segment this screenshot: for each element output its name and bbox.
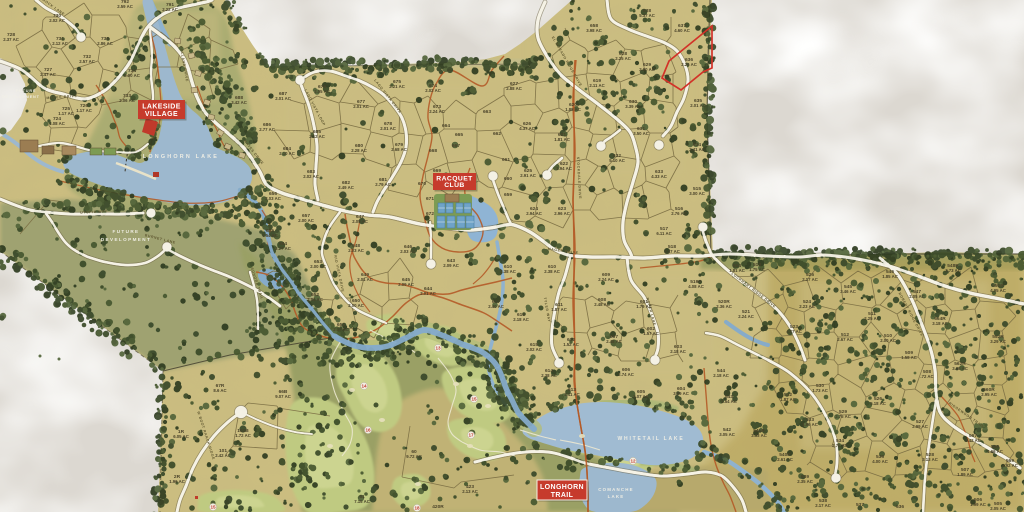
svg-text:2.01 AC: 2.01 AC bbox=[690, 103, 706, 108]
svg-text:2.40 AC: 2.40 AC bbox=[488, 304, 504, 309]
svg-text:536: 536 bbox=[896, 504, 904, 510]
svg-text:2.24 AC: 2.24 AC bbox=[598, 277, 614, 282]
svg-text:9.07 AC: 9.07 AC bbox=[275, 394, 291, 399]
svg-text:.72 AC: .72 AC bbox=[920, 374, 933, 379]
svg-text:1.54 AC: 1.54 AC bbox=[721, 399, 737, 404]
svg-text:3.33 AC: 3.33 AC bbox=[751, 433, 767, 438]
svg-text:LAKESIDE: LAKESIDE bbox=[142, 103, 181, 110]
svg-text:2.49 AC: 2.49 AC bbox=[338, 185, 354, 190]
svg-text:3.42 AC: 3.42 AC bbox=[231, 100, 247, 105]
svg-text:1.89 AC: 1.89 AC bbox=[957, 472, 973, 477]
svg-text:2.59 AC: 2.59 AC bbox=[117, 4, 133, 9]
svg-text:4.27 AC: 4.27 AC bbox=[786, 329, 802, 334]
svg-text:1.99 AC: 1.99 AC bbox=[970, 502, 986, 507]
svg-text:2.23 AC: 2.23 AC bbox=[799, 304, 815, 309]
svg-text:2.61 AC: 2.61 AC bbox=[777, 457, 793, 462]
svg-text:2.01 AC: 2.01 AC bbox=[420, 291, 436, 296]
svg-text:2.01 AC: 2.01 AC bbox=[353, 104, 369, 109]
svg-text:12: 12 bbox=[630, 459, 636, 464]
svg-text:664: 664 bbox=[442, 123, 450, 129]
svg-text:2.00 AC: 2.00 AC bbox=[124, 73, 140, 78]
svg-text:1.73 AC: 1.73 AC bbox=[812, 388, 828, 393]
svg-text:FUTURE: FUTURE bbox=[112, 229, 139, 234]
svg-text:DEVELOPMENT: DEVELOPMENT bbox=[101, 237, 151, 242]
svg-text:2.94 AC: 2.94 AC bbox=[526, 211, 542, 216]
svg-text:668: 668 bbox=[429, 148, 437, 154]
svg-text:3.39 AC: 3.39 AC bbox=[625, 104, 641, 109]
svg-text:2.02 AC: 2.02 AC bbox=[303, 174, 319, 179]
svg-text:2.37 AC: 2.37 AC bbox=[3, 37, 19, 42]
svg-text:1.99 AC: 1.99 AC bbox=[802, 422, 818, 427]
svg-text:8.6 AC: 8.6 AC bbox=[213, 388, 226, 393]
svg-text:2.75 AC: 2.75 AC bbox=[835, 414, 851, 419]
svg-text:2.79 AC: 2.79 AC bbox=[832, 443, 848, 448]
svg-text:2.36 AC: 2.36 AC bbox=[716, 304, 732, 309]
svg-text:2.67 AC: 2.67 AC bbox=[837, 337, 853, 342]
svg-text:2.09 AC: 2.09 AC bbox=[398, 282, 414, 287]
svg-text:5.37 AC: 5.37 AC bbox=[639, 13, 655, 18]
svg-text:4.95 AC: 4.95 AC bbox=[990, 288, 1006, 293]
svg-text:2.17 AC: 2.17 AC bbox=[815, 503, 831, 508]
svg-text:1.94 AC: 1.94 AC bbox=[556, 166, 572, 171]
svg-text:2.05 AC: 2.05 AC bbox=[314, 89, 330, 94]
svg-text:2.01 AC: 2.01 AC bbox=[307, 297, 323, 302]
svg-text:4.37 AC: 4.37 AC bbox=[519, 126, 535, 131]
svg-text:5.10 AC: 5.10 AC bbox=[609, 158, 625, 163]
svg-text:6.11 AC: 6.11 AC bbox=[656, 231, 671, 236]
svg-text:TRAIL: TRAIL bbox=[551, 492, 574, 499]
svg-text:WHITETAIL LAKE: WHITETAIL LAKE bbox=[618, 436, 685, 442]
svg-text:667: 667 bbox=[452, 143, 460, 149]
svg-text:1.85 AC: 1.85 AC bbox=[882, 274, 898, 279]
svg-text:2.88 AC: 2.88 AC bbox=[506, 86, 522, 91]
svg-text:2.86 AC: 2.86 AC bbox=[97, 41, 113, 46]
svg-text:1.81 AC: 1.81 AC bbox=[729, 268, 745, 273]
svg-text:2.17 AC: 2.17 AC bbox=[333, 327, 349, 332]
svg-text:DEVELOPMENT: DEVELOPMENT bbox=[2, 95, 40, 99]
svg-text:2.01 AC: 2.01 AC bbox=[357, 277, 373, 282]
svg-text:2.11 AC: 2.11 AC bbox=[564, 392, 579, 397]
svg-text:2.47 AC: 2.47 AC bbox=[40, 72, 56, 77]
svg-text:2.41 AC: 2.41 AC bbox=[689, 147, 705, 152]
svg-text:659: 659 bbox=[504, 192, 512, 198]
svg-text:2.68 AC: 2.68 AC bbox=[391, 147, 407, 152]
svg-text:2.05 AC: 2.05 AC bbox=[909, 294, 925, 299]
svg-text:VILLAGE: VILLAGE bbox=[145, 111, 178, 118]
svg-text:1.87 AC: 1.87 AC bbox=[551, 307, 567, 312]
svg-text:1.72 AC: 1.72 AC bbox=[235, 433, 251, 438]
svg-text:2.22 AC: 2.22 AC bbox=[162, 7, 178, 12]
svg-text:2.18 AC: 2.18 AC bbox=[670, 349, 686, 354]
svg-text:672: 672 bbox=[426, 211, 434, 217]
svg-text:CLUB: CLUB bbox=[444, 182, 464, 189]
svg-text:1.08 AC: 1.08 AC bbox=[49, 121, 65, 126]
svg-text:3.29 AC: 3.29 AC bbox=[990, 339, 1006, 344]
svg-text:LAKE: LAKE bbox=[608, 494, 625, 499]
svg-text:671: 671 bbox=[426, 196, 434, 202]
svg-text:2.00 AC: 2.00 AC bbox=[298, 218, 314, 223]
svg-text:2.09 AC: 2.09 AC bbox=[443, 263, 459, 268]
svg-text:16: 16 bbox=[365, 428, 371, 433]
svg-text:5.18 AC: 5.18 AC bbox=[870, 401, 886, 406]
svg-text:2.17 AC: 2.17 AC bbox=[802, 277, 818, 282]
svg-text:17: 17 bbox=[468, 433, 474, 438]
svg-text:2.38 AC: 2.38 AC bbox=[544, 269, 560, 274]
svg-text:2.03 AC: 2.03 AC bbox=[348, 248, 364, 253]
svg-text:3.50 AC: 3.50 AC bbox=[633, 131, 649, 136]
svg-text:1.75 AC: 1.75 AC bbox=[749, 267, 765, 272]
svg-text:4.60 AC: 4.60 AC bbox=[674, 28, 690, 33]
svg-text:1.17 AC: 1.17 AC bbox=[58, 111, 74, 116]
svg-text:4.33 AC: 4.33 AC bbox=[651, 174, 667, 179]
svg-text:2.79 AC: 2.79 AC bbox=[375, 182, 391, 187]
svg-text:2.02 AC: 2.02 AC bbox=[49, 18, 65, 23]
svg-text:9.72 AC: 9.72 AC bbox=[406, 454, 422, 459]
svg-text:2.99 AC: 2.99 AC bbox=[912, 424, 928, 429]
svg-text:2.26 AC: 2.26 AC bbox=[681, 62, 697, 67]
svg-text:661: 661 bbox=[502, 157, 510, 163]
svg-text:670: 670 bbox=[418, 181, 426, 187]
svg-text:18: 18 bbox=[414, 506, 420, 511]
svg-text:2.25 AC: 2.25 AC bbox=[864, 316, 880, 321]
svg-text:3.35 AC: 3.35 AC bbox=[952, 366, 968, 371]
svg-text:COMANCHE: COMANCHE bbox=[598, 487, 633, 492]
svg-text:2.28 AC: 2.28 AC bbox=[351, 148, 367, 153]
svg-text:665: 665 bbox=[455, 132, 463, 138]
svg-text:537: 537 bbox=[856, 502, 864, 508]
svg-text:660: 660 bbox=[504, 176, 512, 182]
svg-text:2.35 AC: 2.35 AC bbox=[797, 479, 813, 484]
svg-text:4.08 AC: 4.08 AC bbox=[688, 284, 704, 289]
svg-text:2.06 AC: 2.06 AC bbox=[119, 98, 135, 103]
svg-text:1.79 AC: 1.79 AC bbox=[636, 304, 652, 309]
svg-text:15: 15 bbox=[471, 397, 477, 402]
svg-text:663: 663 bbox=[483, 109, 491, 115]
svg-text:13: 13 bbox=[435, 346, 441, 351]
svg-text:3.13 AC: 3.13 AC bbox=[922, 457, 938, 462]
svg-text:2.02 AC: 2.02 AC bbox=[526, 347, 542, 352]
svg-text:2.00 AC: 2.00 AC bbox=[639, 67, 655, 72]
svg-text:2.13 AC: 2.13 AC bbox=[462, 489, 478, 494]
svg-text:1.52 AC: 1.52 AC bbox=[563, 342, 579, 347]
svg-text:2.27 AC: 2.27 AC bbox=[664, 249, 680, 254]
svg-text:3.05 AC: 3.05 AC bbox=[719, 432, 735, 437]
svg-text:2.77 AC: 2.77 AC bbox=[259, 127, 275, 132]
svg-text:2.74 AC: 2.74 AC bbox=[618, 372, 634, 377]
svg-text:2.24 AC: 2.24 AC bbox=[429, 109, 445, 114]
svg-text:14: 14 bbox=[361, 384, 367, 389]
svg-text:2.07 AC: 2.07 AC bbox=[633, 394, 649, 399]
svg-text:3.00 AC: 3.00 AC bbox=[689, 191, 705, 196]
svg-text:1.57 AC: 1.57 AC bbox=[643, 331, 659, 336]
svg-text:1.17 AC: 1.17 AC bbox=[76, 108, 92, 113]
svg-text:1.54 AC: 1.54 AC bbox=[262, 233, 278, 238]
svg-text:2.21 AC: 2.21 AC bbox=[389, 84, 405, 89]
svg-text:2.57 AC: 2.57 AC bbox=[79, 59, 95, 64]
svg-text:3.73 AC: 3.73 AC bbox=[945, 268, 961, 273]
svg-text:1.96 AC: 1.96 AC bbox=[169, 479, 185, 484]
svg-text:1.92 AC: 1.92 AC bbox=[1002, 463, 1018, 468]
svg-text:2.03 AC: 2.03 AC bbox=[400, 249, 416, 254]
svg-text:2.38 AC: 2.38 AC bbox=[500, 269, 516, 274]
svg-text:669: 669 bbox=[433, 168, 441, 174]
svg-text:2.27 AC: 2.27 AC bbox=[275, 246, 291, 251]
svg-text:2.48 AC: 2.48 AC bbox=[594, 302, 610, 307]
svg-text:2.38 AC: 2.38 AC bbox=[541, 373, 557, 378]
svg-text:6.05 AC: 6.05 AC bbox=[173, 434, 189, 439]
svg-text:2.24 AC: 2.24 AC bbox=[738, 314, 754, 319]
svg-text:1.58 AC: 1.58 AC bbox=[901, 355, 917, 360]
svg-text:2.25 AC: 2.25 AC bbox=[615, 56, 631, 61]
svg-text:2.05 AC: 2.05 AC bbox=[990, 506, 1006, 511]
svg-text:2.96 AC: 2.96 AC bbox=[554, 211, 570, 216]
svg-text:3.98 AC: 3.98 AC bbox=[586, 28, 602, 33]
svg-text:2.91 AC: 2.91 AC bbox=[520, 173, 536, 178]
svg-text:2.00 AC: 2.00 AC bbox=[310, 264, 326, 269]
svg-text:2.95 AC: 2.95 AC bbox=[981, 392, 997, 397]
svg-text:420R: 420R bbox=[432, 504, 444, 510]
svg-text:4.00 AC: 4.00 AC bbox=[872, 459, 888, 464]
svg-text:2.01 AC: 2.01 AC bbox=[380, 126, 396, 131]
svg-text:7.15 AC: 7.15 AC bbox=[354, 499, 370, 504]
svg-text:2.02 AC: 2.02 AC bbox=[425, 88, 441, 93]
svg-text:1.81 AC: 1.81 AC bbox=[554, 137, 570, 142]
svg-text:2.01 AC: 2.01 AC bbox=[275, 96, 291, 101]
svg-text:2.05 AC: 2.05 AC bbox=[352, 219, 368, 224]
svg-text:1.66 AC: 1.66 AC bbox=[987, 449, 1003, 454]
svg-text:3.89 AC: 3.89 AC bbox=[673, 391, 689, 396]
svg-text:1.88 AC: 1.88 AC bbox=[565, 107, 581, 112]
svg-text:3.46 AC: 3.46 AC bbox=[840, 289, 856, 294]
svg-text:1.42 AC: 1.42 AC bbox=[965, 438, 981, 443]
svg-text:LONGHORN: LONGHORN bbox=[540, 484, 584, 491]
svg-text:2.18 AC: 2.18 AC bbox=[713, 373, 729, 378]
svg-text:2.10 AC: 2.10 AC bbox=[279, 151, 295, 156]
svg-text:2.00 AC: 2.00 AC bbox=[348, 303, 364, 308]
svg-text:LONGHORN LAKE: LONGHORN LAKE bbox=[143, 154, 219, 160]
svg-text:2.11 AC: 2.11 AC bbox=[589, 83, 604, 88]
svg-text:2.42 AC: 2.42 AC bbox=[215, 453, 231, 458]
svg-text:3.18 AC: 3.18 AC bbox=[932, 321, 948, 326]
svg-text:2.48 AC: 2.48 AC bbox=[606, 339, 622, 344]
svg-text:FUTURE: FUTURE bbox=[16, 89, 36, 93]
svg-text:1.87 AC: 1.87 AC bbox=[780, 397, 796, 402]
svg-text:2.76 AC: 2.76 AC bbox=[671, 211, 687, 216]
svg-text:2.18 AC: 2.18 AC bbox=[513, 317, 529, 322]
svg-text:15: 15 bbox=[210, 505, 216, 510]
svg-text:2.00 AC: 2.00 AC bbox=[880, 338, 896, 343]
svg-text:662: 662 bbox=[493, 131, 501, 137]
svg-text:2.12 AC: 2.12 AC bbox=[52, 41, 68, 46]
svg-text:2.12 AC: 2.12 AC bbox=[309, 134, 325, 139]
svg-text:2.03 AC: 2.03 AC bbox=[265, 196, 281, 201]
